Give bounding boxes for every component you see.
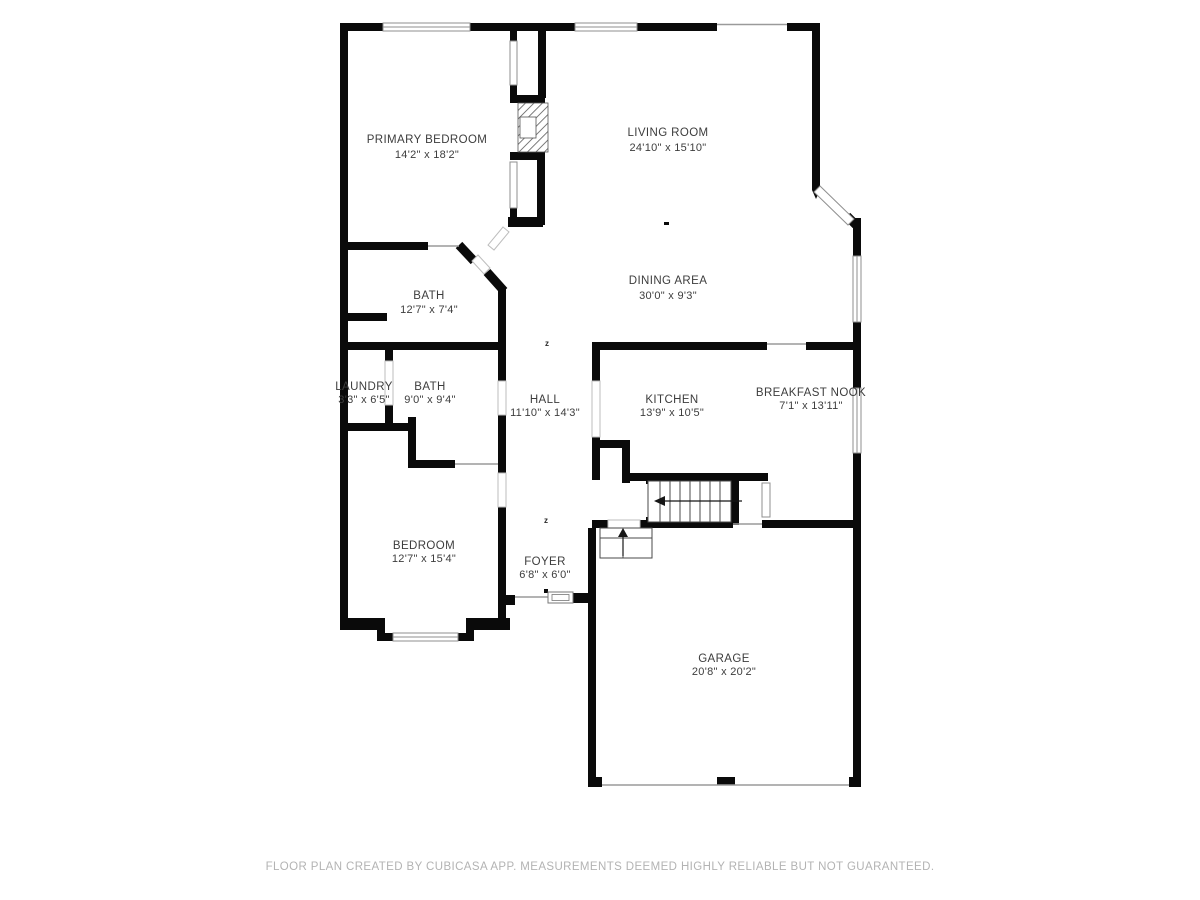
svg-text:30'0" x 9'3": 30'0" x 9'3"	[639, 290, 697, 302]
window-nook-upper	[853, 256, 861, 322]
svg-text:20'8" x 20'2": 20'8" x 20'2"	[692, 666, 756, 678]
front-door	[548, 592, 573, 603]
thin-wall-closet-upper	[510, 41, 517, 85]
room-label-foyer: FOYER 6'8" x 6'0"	[519, 556, 570, 581]
room-label-laundry: LAUNDRY 3'3" x 6'5"	[335, 381, 393, 406]
floor-plan: PRIMARY BEDROOM 14'2" x 18'2" LIVING ROO…	[0, 0, 1200, 900]
disclaimer-text: FLOOR PLAN CREATED BY CUBICASA APP. MEAS…	[0, 861, 1200, 873]
ceiling-symbols: z z	[544, 339, 549, 525]
room-labels: PRIMARY BEDROOM 14'2" x 18'2" LIVING ROO…	[335, 127, 866, 678]
svg-text:LIVING ROOM: LIVING ROOM	[627, 127, 708, 139]
svg-text:12'7" x 7'4": 12'7" x 7'4"	[400, 304, 458, 316]
svg-text:6'8" x 6'0": 6'8" x 6'0"	[519, 569, 570, 581]
room-label-kitchen: KITCHEN 13'9" x 10'5"	[640, 394, 704, 419]
stair-railing	[762, 483, 770, 517]
svg-text:GARAGE: GARAGE	[698, 653, 750, 665]
kitchen-door	[592, 381, 600, 437]
svg-text:BATH: BATH	[414, 381, 445, 393]
window-top-right	[575, 23, 637, 31]
floor-plan-page: PRIMARY BEDROOM 14'2" x 18'2" LIVING ROO…	[0, 0, 1200, 900]
closet-diagonal-door	[488, 227, 509, 250]
svg-text:LAUNDRY: LAUNDRY	[335, 381, 393, 393]
svg-text:BEDROOM: BEDROOM	[393, 540, 455, 552]
room-label-breakfast-nook: BREAKFAST NOOK 7'1" x 13'11"	[756, 387, 866, 412]
svg-text:KITCHEN: KITCHEN	[645, 394, 698, 406]
svg-text:7'1" x 13'11": 7'1" x 13'11"	[779, 400, 842, 412]
svg-text:9'0" x 9'4": 9'0" x 9'4"	[404, 394, 455, 406]
fireplace	[518, 103, 548, 152]
room-label-bath-1: BATH 12'7" x 7'4"	[400, 290, 458, 316]
svg-text:11'10" x 14'3": 11'10" x 14'3"	[510, 407, 580, 419]
svg-text:14'2" x 18'2": 14'2" x 18'2"	[395, 149, 459, 161]
room-label-living-room: LIVING ROOM 24'10" x 15'10"	[627, 127, 708, 154]
window-diagonal-living	[814, 186, 854, 225]
thin-wall-closet-lower	[510, 162, 517, 208]
garage-entry-door	[608, 520, 640, 528]
room-label-garage: GARAGE 20'8" x 20'2"	[692, 653, 756, 678]
entry-steps	[600, 528, 652, 558]
room-label-hall: HALL 11'10" x 14'3"	[510, 394, 580, 419]
svg-text:13'9" x 10'5": 13'9" x 10'5"	[640, 407, 704, 419]
svg-text:HALL: HALL	[530, 394, 561, 406]
svg-text:BREAKFAST NOOK: BREAKFAST NOOK	[756, 387, 866, 399]
room-label-bath-2: BATH 9'0" x 9'4"	[404, 381, 455, 406]
ceiling-marker-icon: z	[545, 339, 549, 348]
svg-text:12'7" x 15'4": 12'7" x 15'4"	[392, 553, 456, 565]
room-label-primary-bedroom: PRIMARY BEDROOM 14'2" x 18'2"	[367, 134, 488, 161]
room-label-bedroom: BEDROOM 12'7" x 15'4"	[392, 540, 456, 565]
window-bedroom-bay	[393, 633, 458, 641]
svg-text:24'10" x 15'10": 24'10" x 15'10"	[629, 142, 706, 154]
svg-text:DINING AREA: DINING AREA	[629, 275, 708, 287]
svg-text:3'3" x 6'5": 3'3" x 6'5"	[338, 394, 389, 406]
staircase	[648, 481, 742, 522]
bedroom-door	[498, 473, 506, 507]
svg-text:FOYER: FOYER	[524, 556, 566, 568]
ceiling-marker-icon: z	[544, 516, 548, 525]
svg-text:PRIMARY BEDROOM: PRIMARY BEDROOM	[367, 134, 488, 146]
svg-text:BATH: BATH	[413, 290, 444, 302]
bath-diagonal-door	[472, 255, 490, 274]
window-top-left	[383, 23, 470, 31]
bath-door	[498, 381, 506, 415]
room-label-dining-area: DINING AREA 30'0" x 9'3"	[629, 275, 708, 302]
